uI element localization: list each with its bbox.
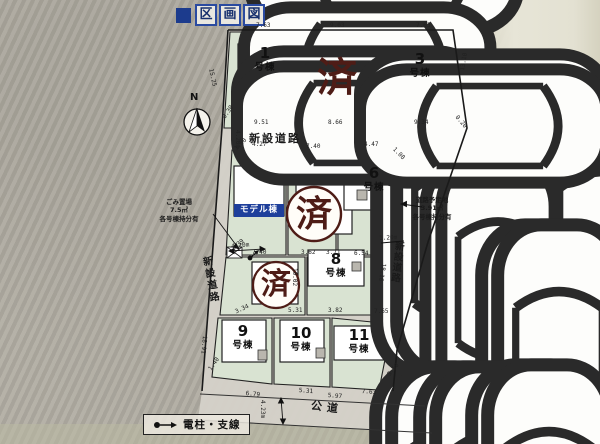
dimension-label: 9.03 (330, 22, 344, 29)
dimension-label: 4.47 (364, 141, 378, 148)
legend-label: 電柱・支線 (183, 417, 241, 432)
annotation-line: 7.5㎡ (146, 206, 212, 214)
dimension-label: 7.40 (306, 143, 320, 150)
dimension-label: 6.54 (354, 250, 368, 257)
compass-icon (184, 108, 210, 135)
title-square-icon (176, 8, 191, 23)
dimension-label: 9.34 (414, 119, 428, 126)
legend-box: 電柱・支線 (143, 414, 250, 435)
lot-label-6: 6 号棟 (353, 166, 395, 193)
dimension-label: 3.82 (328, 307, 342, 314)
dimension-label: 5.97 (327, 392, 342, 400)
dimension-label: 7.63 (362, 388, 377, 396)
dimension-label: 8.66 (328, 119, 342, 126)
dimension-label: 7.63 (416, 22, 430, 29)
lot-label-3: 3 号棟 (399, 52, 441, 79)
dimension-label: 5.31 (288, 307, 302, 314)
dimension-label: 9.51 (254, 119, 268, 126)
dimension-label: 6.79 (245, 390, 260, 398)
annotation-line: 3.91㎡ (402, 204, 462, 212)
title-char: 画 (219, 4, 241, 26)
dimension-label: 7.40 (252, 249, 266, 256)
sold-mark-row2: 済 (294, 196, 334, 232)
dimension-label: 10.02 (291, 268, 298, 286)
annotation-line: 各号棟持分有 (402, 213, 462, 221)
dimension-label: 7.65 (374, 308, 388, 315)
dimension-label: 1.20m (379, 234, 397, 242)
dimension-label: 4.27 (252, 141, 266, 148)
dimension-label: 7.63 (256, 22, 270, 29)
lot-label-10: 10 号棟 (280, 326, 322, 353)
page-title: 区画図 (176, 4, 267, 26)
model-house-label: モデル棟 (234, 204, 284, 217)
compass-north-label: N (190, 92, 198, 103)
sold-mark-row1: 済 (315, 58, 359, 98)
lot-label-11: 11 号棟 (338, 328, 380, 355)
lot-label-1: 1 号棟 (244, 46, 286, 73)
pole-arrow-icon (152, 419, 178, 431)
garbage-annotation: ごみ置場7.5㎡各号棟持分有 (146, 198, 212, 223)
dimension-label: 4.23m (259, 400, 266, 418)
title-char: 区 (195, 4, 217, 26)
planned-road-annotation: 道路予定地3.91㎡各号棟持分有 (402, 196, 462, 221)
lot-label-9: 9 号棟 (222, 324, 264, 351)
annotation-line: 各号棟持分有 (146, 215, 212, 223)
dimension-label: 3.71 (326, 249, 340, 256)
dimension-label: 3.62 (301, 249, 315, 256)
dimension-label: 5.31 (298, 387, 313, 395)
sold-mark-row3: 済 (259, 270, 293, 300)
